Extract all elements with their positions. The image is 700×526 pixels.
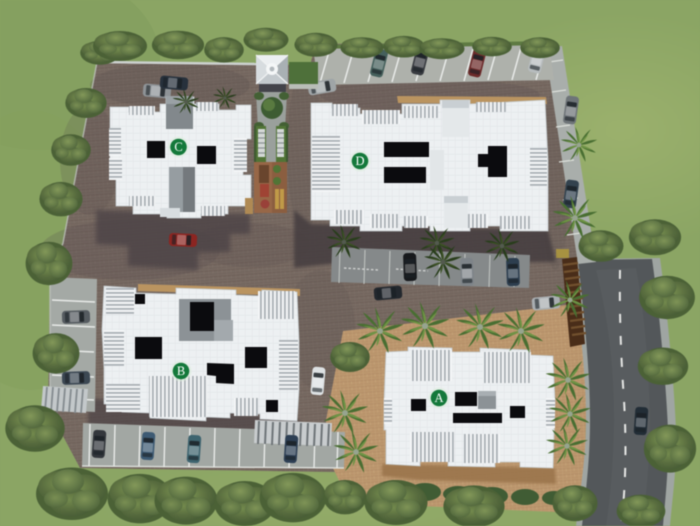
svg-text:C: C: [174, 140, 182, 154]
svg-text:A: A: [434, 391, 443, 405]
svg-text:B: B: [177, 364, 185, 378]
svg-text:D: D: [355, 154, 364, 168]
